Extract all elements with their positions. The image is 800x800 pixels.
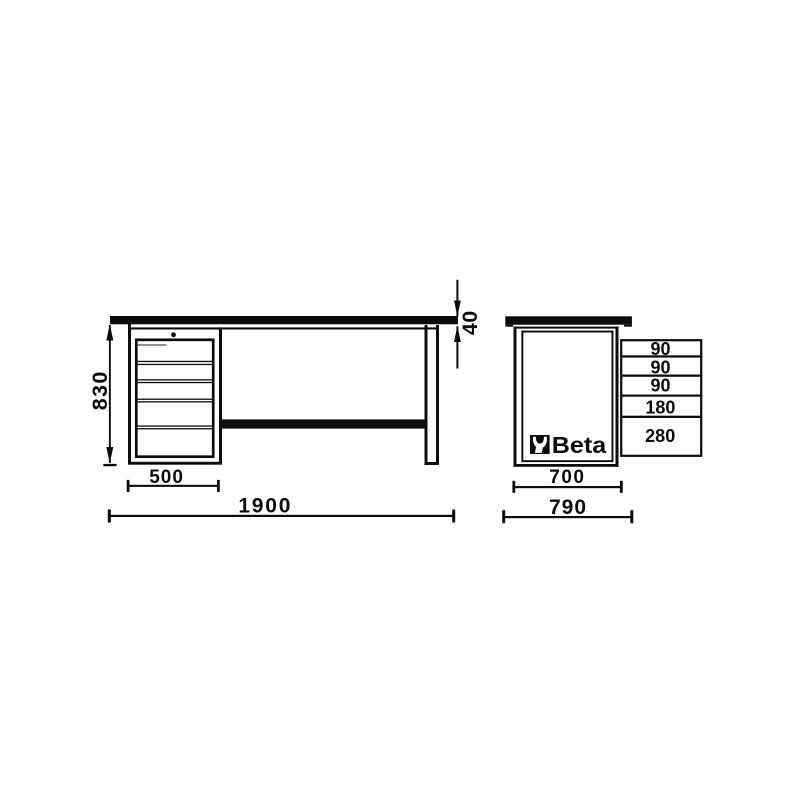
svg-text:180: 180: [645, 397, 675, 417]
svg-text:500: 500: [149, 467, 184, 488]
svg-text:790: 790: [549, 496, 587, 519]
svg-text:90: 90: [650, 376, 670, 396]
svg-text:700: 700: [549, 467, 585, 488]
svg-text:830: 830: [88, 370, 112, 410]
svg-text:40: 40: [458, 310, 482, 335]
svg-text:Beta: Beta: [552, 432, 607, 458]
svg-text:1900: 1900: [238, 494, 292, 517]
svg-text:280: 280: [645, 426, 675, 446]
